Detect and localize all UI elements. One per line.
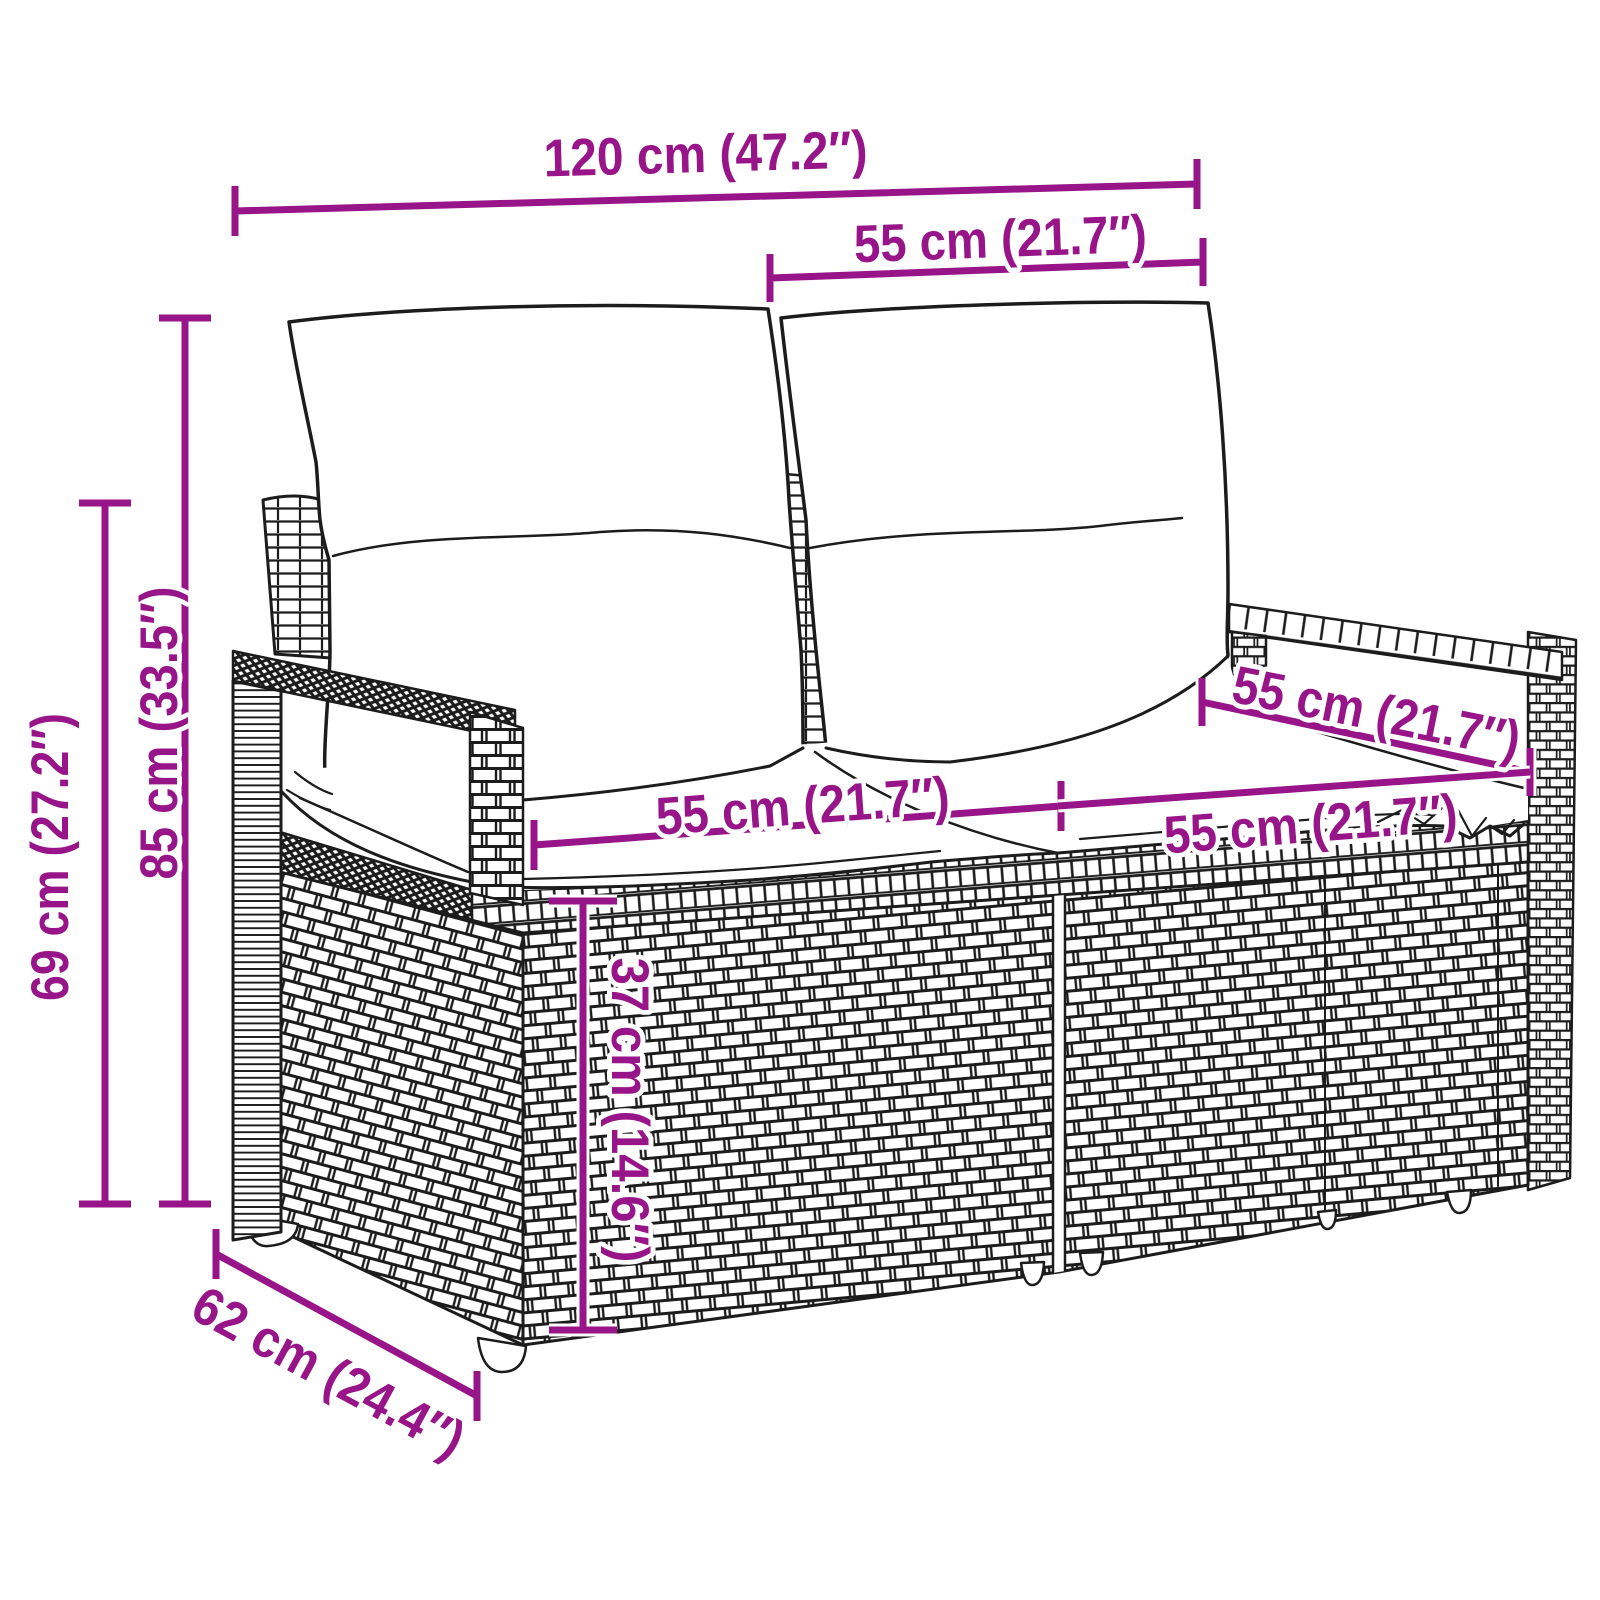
svg-text:69 cm (27.2″): 69 cm (27.2″) <box>21 713 80 1001</box>
svg-text:85 cm (33.5″): 85 cm (33.5″) <box>130 587 189 880</box>
svg-text:55 cm (21.7″): 55 cm (21.7″) <box>853 205 1148 275</box>
svg-text:37 cm (14.6″): 37 cm (14.6″) <box>600 958 659 1263</box>
svg-text:120 cm (47.2″): 120 cm (47.2″) <box>543 120 869 188</box>
